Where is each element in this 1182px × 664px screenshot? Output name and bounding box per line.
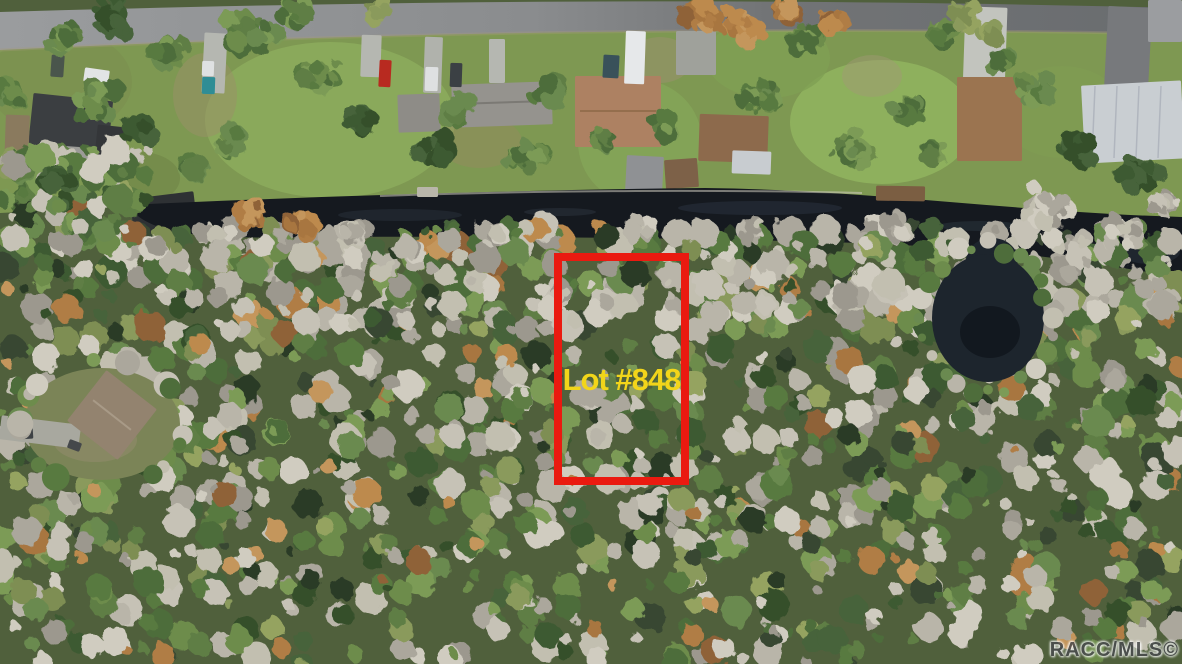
car-green-left (50, 55, 65, 78)
driveway-2 (360, 35, 381, 78)
truck-dark-teal (602, 55, 619, 79)
house-brown-right (957, 77, 1022, 161)
lot-outline: Lot #848 (554, 253, 689, 485)
porch-white-mid (732, 150, 772, 174)
driveway-4 (489, 39, 505, 83)
house-gray-small (397, 93, 440, 132)
car-red (378, 60, 391, 88)
lot-label: Lot #848 (563, 362, 681, 398)
aerial-photo: Lot #848 RACC/MLS© (0, 0, 1182, 664)
boat-teal (202, 77, 216, 94)
house-metal-right (1081, 80, 1182, 163)
road-patch-corner (1148, 0, 1182, 42)
car-white-2 (425, 67, 439, 91)
boathouse-gray (625, 155, 664, 192)
driveway-pad (676, 31, 716, 75)
boathouse-brown (664, 158, 699, 189)
truck-white (202, 61, 215, 76)
rv-white (624, 31, 646, 85)
mls-watermark: RACC/MLS© (1050, 639, 1179, 662)
car-dark (450, 63, 463, 87)
dock-brown (876, 186, 925, 202)
dock-small (417, 187, 438, 197)
